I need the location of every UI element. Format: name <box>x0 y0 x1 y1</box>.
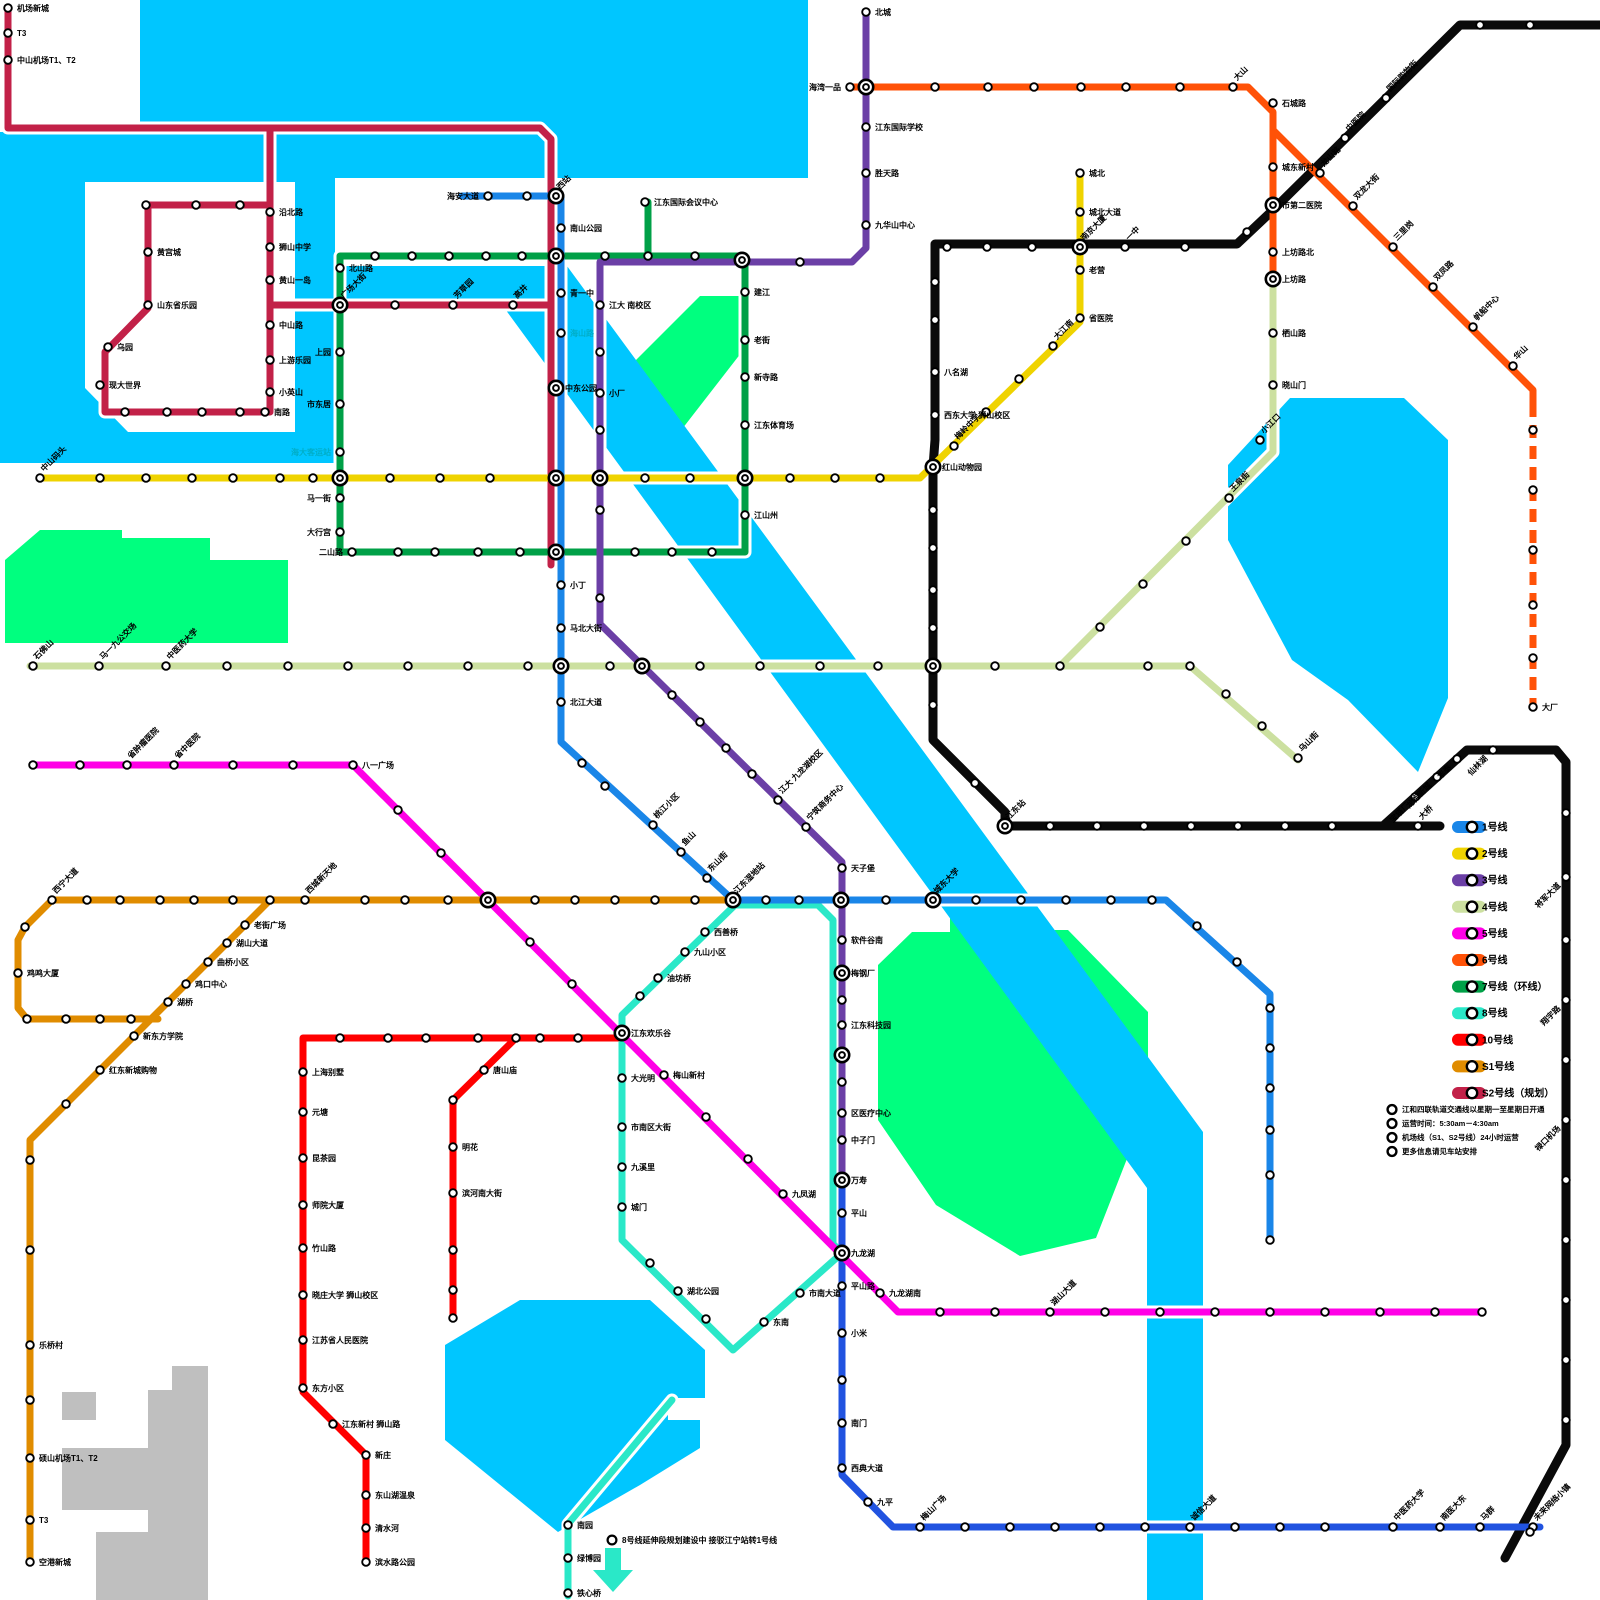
station-dot <box>449 1143 457 1151</box>
station-dot <box>1121 243 1129 251</box>
metro-map-page: 机场新城T3中山机场T1、T2沿北路狮山中学黄山一岛中山路上游乐园小英山南路黄宫… <box>0 0 1600 1600</box>
station-dot <box>329 1420 337 1428</box>
station-dot <box>1076 266 1084 274</box>
station-dot <box>596 389 604 397</box>
station-dot <box>163 408 171 416</box>
station-dot <box>266 896 274 904</box>
station-dot <box>557 329 565 337</box>
station-label: 红山动物园 <box>942 462 982 472</box>
station-dot <box>482 252 490 260</box>
station-label: 北江大道 <box>570 697 602 707</box>
station-label: 大厂 <box>1542 702 1558 712</box>
station-dot <box>1529 654 1537 662</box>
station-dot <box>802 823 810 831</box>
station-dot <box>36 474 44 482</box>
station-label: 海山路 <box>570 328 595 338</box>
station-dot <box>344 662 352 670</box>
legend-label: S1号线 <box>1482 1060 1514 1073</box>
station-dot <box>931 411 939 419</box>
station-dot <box>862 221 870 229</box>
station-label: 鸡鸣大厦 <box>26 968 60 978</box>
station-dot <box>568 980 576 988</box>
station-dot <box>1509 362 1517 370</box>
legend-label: 3号线 <box>1482 874 1508 887</box>
station-label: 鸡口中心 <box>194 979 227 989</box>
station-label: 新庄 <box>375 1450 391 1460</box>
legend-label: 5号线 <box>1482 927 1508 940</box>
station-dot <box>931 316 939 324</box>
legend-station-icon <box>1467 1061 1477 1071</box>
station-dot <box>192 201 200 209</box>
station-label: 海湾一品 <box>809 82 841 92</box>
airport-block <box>62 1392 96 1420</box>
airport-block <box>172 1366 208 1390</box>
station-dot <box>1529 426 1537 434</box>
station-dot <box>646 1259 654 1267</box>
station-dot <box>223 662 231 670</box>
station-dot <box>394 806 402 814</box>
station-label: 铁心桥 <box>577 1588 602 1598</box>
station-dot <box>838 1078 846 1086</box>
station-label: 马一街 <box>307 493 331 503</box>
legend-label: 8号线 <box>1482 1007 1508 1020</box>
station-dot <box>4 4 12 12</box>
station-dot <box>961 1523 969 1531</box>
station-label: 小米 <box>850 1328 868 1338</box>
station-dot <box>1156 1308 1164 1316</box>
station-dot <box>1181 243 1189 251</box>
station-dot <box>536 1034 544 1042</box>
station-dot <box>474 1034 482 1042</box>
station-dot <box>1476 21 1484 29</box>
station-dot <box>23 1015 31 1023</box>
station-dot <box>557 624 565 632</box>
interchange-dot-inner <box>1077 244 1083 250</box>
station-label: 梅钢厂 <box>851 968 875 978</box>
interchange-dot-inner <box>337 302 343 308</box>
extension-note-label: 8号线延伸段规划建设中 接驳江宁站转1号线 <box>622 1535 777 1545</box>
station-dot <box>156 896 164 904</box>
station-dot <box>509 301 517 309</box>
interchange-dot-inner <box>553 193 559 199</box>
station-label: 师院大厦 <box>312 1200 345 1210</box>
interchange-dot-inner <box>553 253 559 259</box>
station-dot <box>838 1329 846 1337</box>
station-dot <box>408 252 416 260</box>
station-dot <box>760 1318 768 1326</box>
station-label: 黄山一岛 <box>279 275 311 285</box>
station-dot <box>1234 822 1242 830</box>
station-dot <box>651 896 659 904</box>
metro-map-svg: 机场新城T3中山机场T1、T2沿北路狮山中学黄山一岛中山路上游乐园小英山南路黄宫… <box>0 0 1600 1600</box>
station-dot <box>1030 83 1038 91</box>
station-dot <box>744 1155 752 1163</box>
station-dot <box>674 1287 682 1295</box>
station-label: 西典大道 <box>851 1463 883 1473</box>
station-dot <box>991 662 999 670</box>
station-dot <box>26 1341 34 1349</box>
station-dot <box>62 1015 70 1023</box>
station-label: 栖山路 <box>1282 328 1307 338</box>
station-dot <box>336 264 344 272</box>
station-dot <box>449 301 457 309</box>
station-dot <box>1017 896 1025 904</box>
station-dot <box>48 896 56 904</box>
station-dot <box>21 923 29 931</box>
legend-label: 6号线 <box>1482 954 1508 967</box>
station-dot <box>874 662 882 670</box>
station-dot <box>618 1074 626 1082</box>
station-dot <box>486 474 494 482</box>
station-label: 南门 <box>851 1418 867 1428</box>
legend-station-icon <box>1467 1088 1477 1098</box>
station-dot <box>1186 1523 1194 1531</box>
station-label: 湖北公园 <box>687 1286 719 1296</box>
station-label: 清水河 <box>375 1523 399 1533</box>
station-label: 九平 <box>876 1497 893 1507</box>
airport-block <box>148 1390 208 1600</box>
station-dot <box>696 662 704 670</box>
station-dot <box>971 779 979 787</box>
interchange-dot-inner <box>639 663 645 669</box>
station-dot <box>557 581 565 589</box>
station-dot <box>401 896 409 904</box>
station-dot <box>474 548 482 556</box>
station-dot <box>29 662 37 670</box>
station-label: 上园 <box>315 347 331 357</box>
station-label: 中东公园 <box>565 383 597 393</box>
station-dot <box>1144 662 1152 670</box>
station-dot <box>299 1244 307 1252</box>
station-dot <box>931 278 939 286</box>
station-dot <box>144 248 152 256</box>
station-dot <box>686 474 694 482</box>
legend-item: 1号线 <box>1452 821 1508 834</box>
legend-label: S2号线（规划） <box>1482 1087 1554 1100</box>
station-dot <box>349 761 357 769</box>
station-dot <box>1562 1356 1570 1364</box>
station-dot <box>261 408 269 416</box>
note-text: 机场线（S1、S2号线）24小时运营 <box>1402 1132 1519 1142</box>
station-dot <box>564 1521 572 1529</box>
station-dot <box>1341 134 1349 142</box>
station-dot <box>404 662 412 670</box>
station-dot <box>223 939 231 947</box>
interchange-dot-inner <box>930 464 936 470</box>
station-dot <box>1049 342 1057 350</box>
station-label: 南园 <box>577 1520 593 1530</box>
station-dot <box>929 544 937 552</box>
station-dot <box>1562 1176 1570 1184</box>
interchange-dot-inner <box>838 897 844 903</box>
station-dot <box>394 548 402 556</box>
station-dot <box>276 474 284 482</box>
station-dot <box>838 1464 846 1472</box>
station-dot <box>1562 1236 1570 1244</box>
station-dot <box>1229 83 1237 91</box>
station-label: 红东新城购物 <box>109 1065 157 1075</box>
station-dot <box>1096 623 1104 631</box>
interchange-dot-inner <box>1270 202 1276 208</box>
station-dot <box>1266 1236 1274 1244</box>
station-dot <box>796 1289 804 1297</box>
station-dot <box>984 83 992 91</box>
legend-item: S1号线 <box>1452 1060 1514 1073</box>
station-dot <box>1382 94 1390 102</box>
interchange-dot-inner <box>558 663 564 669</box>
station-dot <box>284 662 292 670</box>
station-dot <box>931 83 939 91</box>
station-dot <box>1096 1523 1104 1531</box>
station-dot <box>668 548 676 556</box>
station-dot <box>708 548 716 556</box>
station-dot <box>362 1451 370 1459</box>
station-dot <box>1107 896 1115 904</box>
station-label: 江大 南校区 <box>609 300 651 310</box>
station-dot <box>644 252 652 260</box>
station-dot <box>741 373 749 381</box>
station-label: 石城路 <box>1281 98 1307 108</box>
station-dot <box>1076 208 1084 216</box>
interchange-dot-inner <box>730 897 736 903</box>
station-label: 上海别墅 <box>312 1067 344 1077</box>
interchange-dot-inner <box>485 897 491 903</box>
station-dot <box>1562 936 1570 944</box>
station-dot <box>1328 822 1336 830</box>
station-dot <box>518 252 526 260</box>
station-dot <box>4 29 12 37</box>
station-dot <box>838 936 846 944</box>
station-dot <box>96 381 104 389</box>
station-label: 二山路 <box>319 547 344 557</box>
station-label: 马北大街 <box>570 623 602 633</box>
station-label: 软件谷南 <box>851 935 883 945</box>
station-dot <box>96 474 104 482</box>
station-label: 沿北路 <box>279 207 304 217</box>
station-dot <box>838 1419 846 1427</box>
station-label: 万寿 <box>850 1175 867 1185</box>
station-label: 城东新村 <box>1282 162 1314 172</box>
station-dot <box>1431 1308 1439 1316</box>
legend-label: 10号线 <box>1482 1033 1513 1046</box>
station-dot <box>1269 381 1277 389</box>
interchange-dot-inner <box>742 475 748 481</box>
station-label: 现大世界 <box>109 380 142 390</box>
station-dot <box>130 1032 138 1040</box>
station-dot <box>1225 494 1233 502</box>
station-dot <box>774 796 782 804</box>
station-label: 建江 <box>753 287 770 297</box>
station-dot <box>972 896 980 904</box>
station-label: 唐山庙 <box>493 1065 517 1075</box>
station-dot <box>1526 21 1534 29</box>
station-label: 西东大学 狮山校区 <box>944 410 1010 420</box>
station-dot <box>142 474 150 482</box>
station-dot <box>1269 248 1277 256</box>
station-dot <box>144 301 152 309</box>
station-dot <box>229 896 237 904</box>
station-label: 市南区大街 <box>631 1122 671 1132</box>
station-dot <box>596 348 604 356</box>
station-dot <box>564 1589 572 1597</box>
station-label: 中山机场T1、T2 <box>17 55 76 65</box>
station-label: 机场新城 <box>17 3 49 13</box>
station-label: 九溪里 <box>630 1162 655 1172</box>
station-dot <box>1389 243 1397 251</box>
station-dot <box>571 896 579 904</box>
station-label: 江东欢乐谷 <box>631 1028 672 1038</box>
station-dot <box>391 301 399 309</box>
station-dot <box>301 896 309 904</box>
station-dot <box>702 1315 710 1323</box>
legend-label: 1号线 <box>1482 821 1508 834</box>
station-label: 老街广场 <box>253 920 286 930</box>
station-dot <box>1231 1523 1239 1531</box>
station-dot <box>1453 755 1461 763</box>
station-label: 江东科技园 <box>851 1020 891 1030</box>
station-dot <box>641 474 649 482</box>
station-label: 上游乐园 <box>279 355 311 365</box>
station-dot <box>121 408 129 416</box>
station-dot <box>162 662 170 670</box>
station-dot <box>444 896 452 904</box>
station-label: 元塘 <box>312 1107 328 1117</box>
station-label: 江东体育场 <box>754 420 794 430</box>
station-dot <box>1139 580 1147 588</box>
station-dot <box>691 252 699 260</box>
station-dot <box>950 442 958 450</box>
legend-item: 4号线 <box>1452 900 1508 913</box>
station-dot <box>1436 1523 1444 1531</box>
legend-station-icon <box>1467 981 1477 991</box>
station-dot <box>1093 822 1101 830</box>
legend-station-icon <box>1467 928 1477 938</box>
station-dot <box>1562 873 1570 881</box>
station-dot <box>299 1291 307 1299</box>
station-dot <box>1266 1084 1274 1092</box>
interchange-dot-inner <box>597 475 603 481</box>
station-label: 九山小区 <box>693 947 726 957</box>
station-dot <box>266 356 274 364</box>
station-dot <box>127 1015 135 1023</box>
station-dot <box>795 896 803 904</box>
station-dot <box>641 198 649 206</box>
station-dot <box>431 548 439 556</box>
station-label: 江苏省人民医院 <box>312 1335 368 1345</box>
interchange-dot-inner <box>930 897 936 903</box>
station-dot <box>1389 1523 1397 1531</box>
station-dot <box>1294 754 1302 762</box>
station-dot <box>96 1015 104 1023</box>
interchange-dot-inner <box>1002 823 1008 829</box>
station-dot <box>1562 1056 1570 1064</box>
station-dot <box>266 321 274 329</box>
station-dot <box>1321 1523 1329 1531</box>
station-label: 大行宫 <box>307 527 331 537</box>
station-dot <box>1243 228 1251 236</box>
legend-label: 4号线 <box>1482 900 1508 913</box>
station-dot <box>741 288 749 296</box>
station-dot <box>701 928 709 936</box>
station-label: 湖山大道 <box>236 938 268 948</box>
station-label: 省医院 <box>1088 313 1113 323</box>
station-dot <box>299 1336 307 1344</box>
station-dot <box>1429 283 1437 291</box>
station-dot <box>523 192 531 200</box>
station-label: 市南大道 <box>809 1288 841 1298</box>
station-dot <box>236 201 244 209</box>
station-dot <box>1056 662 1064 670</box>
interchange-dot-inner <box>839 970 845 976</box>
station-dot <box>1562 1296 1570 1304</box>
station-dot <box>654 974 662 982</box>
station-dot <box>198 408 206 416</box>
station-dot <box>1046 1308 1054 1316</box>
station-dot <box>449 1314 457 1322</box>
station-label: 青一中 <box>570 288 594 298</box>
station-label: 东山湖温泉 <box>375 1490 416 1500</box>
station-dot <box>266 276 274 284</box>
legend-station-icon <box>1467 902 1477 912</box>
station-label: 天子堡 <box>851 863 875 873</box>
station-dot <box>437 849 445 857</box>
station-label: 山东省乐园 <box>157 300 197 310</box>
station-label: 大光明 <box>631 1073 655 1083</box>
legend-item: 8号线 <box>1452 1007 1508 1020</box>
station-label: 胜天路 <box>874 168 900 178</box>
station-dot <box>936 1308 944 1316</box>
station-dot <box>838 864 846 872</box>
station-dot <box>362 1491 370 1499</box>
station-dot <box>862 123 870 131</box>
station-dot <box>289 761 297 769</box>
station-dot <box>786 474 794 482</box>
station-dot <box>636 992 644 1000</box>
station-dot <box>1046 822 1054 830</box>
station-label: 空港新城 <box>39 1557 71 1567</box>
station-label: 南山公园 <box>570 223 602 233</box>
interchange-dot-inner <box>839 1177 845 1183</box>
station-dot <box>1211 1308 1219 1316</box>
station-dot <box>864 1498 872 1506</box>
station-dot <box>596 506 604 514</box>
station-dot <box>336 528 344 536</box>
legend-station-icon <box>1467 1008 1477 1018</box>
station-dot <box>95 662 103 670</box>
station-dot <box>449 1096 457 1104</box>
interchange-dot-inner <box>739 257 745 263</box>
station-label: 新寺路 <box>754 372 779 382</box>
note-text: 江和四联轨道交通线以星期一至星期日开通 <box>1402 1104 1545 1114</box>
station-dot <box>557 289 565 297</box>
legend-station-icon <box>1467 1035 1477 1045</box>
station-dot <box>516 548 524 556</box>
station-dot <box>702 1113 710 1121</box>
station-dot <box>557 698 565 706</box>
station-label: 海大客运站 <box>291 447 331 457</box>
station-dot <box>29 761 37 769</box>
station-label: 平山 <box>851 1208 867 1218</box>
station-dot <box>1469 323 1477 331</box>
station-dot <box>691 896 699 904</box>
station-dot <box>164 998 172 1006</box>
station-dot <box>484 192 492 200</box>
station-dot <box>929 586 937 594</box>
station-dot <box>838 1109 846 1117</box>
station-label: 滨河南大街 <box>462 1188 502 1198</box>
interchange-dot-inner <box>619 1030 625 1036</box>
station-label: 晓庄大学 狮山校区 <box>312 1290 378 1300</box>
